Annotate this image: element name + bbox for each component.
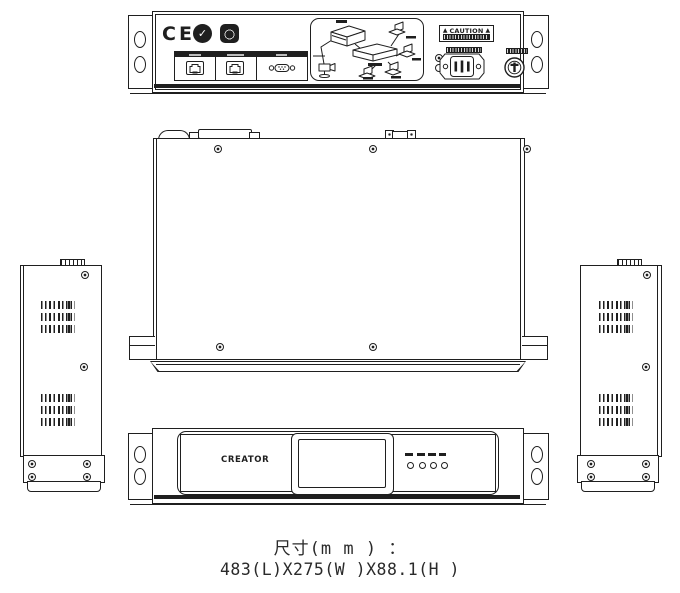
circle-check-cert-logo-icon: ✓ bbox=[193, 24, 212, 43]
front-bottom-lip bbox=[130, 504, 546, 505]
led-indicator bbox=[441, 462, 448, 469]
port-divider bbox=[215, 57, 216, 80]
top-view bbox=[120, 120, 560, 380]
mount-hole bbox=[134, 31, 146, 48]
rear-base-band bbox=[154, 84, 520, 88]
screw bbox=[642, 363, 650, 371]
front-panel-body: CREATOR bbox=[152, 428, 524, 504]
screw bbox=[523, 145, 531, 153]
warning-triangle-icon: ▲ bbox=[486, 28, 491, 34]
inner-edge-line bbox=[156, 139, 157, 359]
lcd-window bbox=[298, 439, 386, 488]
dimension-label: 尺寸(m m ) ： bbox=[0, 534, 680, 559]
caution-fine-print bbox=[443, 34, 490, 40]
iec-c14-power-inlet-icon bbox=[439, 53, 485, 80]
dimension-value: 483(L)X275(W )X88.1(H ) bbox=[0, 560, 680, 579]
vga-port-label bbox=[276, 54, 287, 56]
mechanical-drawing-canvas: CE ✓ bbox=[0, 0, 680, 593]
rear-panel-view: CE ✓ bbox=[0, 0, 680, 100]
ear-line bbox=[130, 345, 155, 346]
led-indicator bbox=[407, 462, 414, 469]
port-divider bbox=[256, 57, 257, 80]
lan-port-label bbox=[189, 54, 201, 56]
screw bbox=[216, 343, 224, 351]
fuse-holder-icon bbox=[504, 57, 525, 78]
front-left-rack-ear bbox=[128, 433, 155, 500]
vent-slots bbox=[41, 313, 75, 321]
vent-slots bbox=[41, 406, 75, 414]
rear-ports-strip bbox=[174, 51, 308, 81]
screw bbox=[369, 145, 377, 153]
screw bbox=[214, 145, 222, 153]
mount-hole bbox=[134, 468, 146, 485]
led-label bbox=[439, 453, 446, 456]
vent-slots bbox=[599, 406, 633, 414]
rj45-port-icon bbox=[186, 61, 204, 75]
inner-edge-line bbox=[520, 139, 521, 359]
screw bbox=[81, 271, 89, 279]
fuse-label bbox=[506, 48, 528, 54]
vga-port-icon bbox=[268, 63, 296, 73]
rear-panel-body: CE ✓ bbox=[152, 11, 524, 93]
rounded-square-cert-logo-icon bbox=[220, 24, 239, 43]
vent-slots bbox=[599, 394, 633, 402]
mount-hole bbox=[134, 56, 146, 73]
mount-hole bbox=[531, 468, 543, 485]
cascade-port-label bbox=[227, 54, 244, 56]
led-label bbox=[417, 453, 425, 456]
mount-hole bbox=[531, 31, 543, 48]
mount-hole bbox=[531, 56, 543, 73]
top-left-mount-ear bbox=[129, 336, 155, 360]
led-label bbox=[405, 453, 413, 456]
check-glyph: ✓ bbox=[198, 27, 207, 40]
vent-slots bbox=[41, 394, 75, 402]
top-chassis-body bbox=[153, 138, 525, 360]
mount-hole bbox=[134, 446, 146, 463]
led-indicator bbox=[430, 462, 437, 469]
ear-line bbox=[522, 345, 547, 346]
vent-slots bbox=[599, 325, 633, 333]
system-topology-illustration-icon bbox=[310, 18, 424, 81]
screw bbox=[643, 271, 651, 279]
vent-slots bbox=[599, 301, 633, 309]
rear-left-rack-ear bbox=[128, 15, 155, 89]
right-side-view bbox=[560, 125, 680, 375]
led-label bbox=[428, 453, 436, 456]
left-side-view bbox=[0, 125, 120, 375]
caution-label: ▲ CAUTION ▲ bbox=[439, 25, 494, 42]
warning-triangle-icon: ▲ bbox=[443, 28, 448, 34]
screw bbox=[369, 343, 377, 351]
mount-hole bbox=[531, 446, 543, 463]
vent-slots bbox=[599, 313, 633, 321]
front-panel-view: CREATOR bbox=[0, 420, 680, 520]
rear-bottom-lip bbox=[130, 93, 546, 94]
screw bbox=[80, 363, 88, 371]
led-indicator bbox=[419, 462, 426, 469]
rail-inner-line bbox=[156, 364, 520, 365]
ce-mark: CE bbox=[162, 25, 195, 44]
top-right-mount-ear bbox=[522, 336, 548, 360]
brand-logo: CREATOR bbox=[221, 456, 269, 465]
vent-slots bbox=[41, 301, 75, 309]
rj45-port-icon bbox=[226, 61, 244, 75]
vent-slots bbox=[41, 325, 75, 333]
front-base-band bbox=[154, 495, 520, 499]
top-front-rail bbox=[150, 361, 526, 372]
front-right-rack-ear bbox=[522, 433, 549, 500]
